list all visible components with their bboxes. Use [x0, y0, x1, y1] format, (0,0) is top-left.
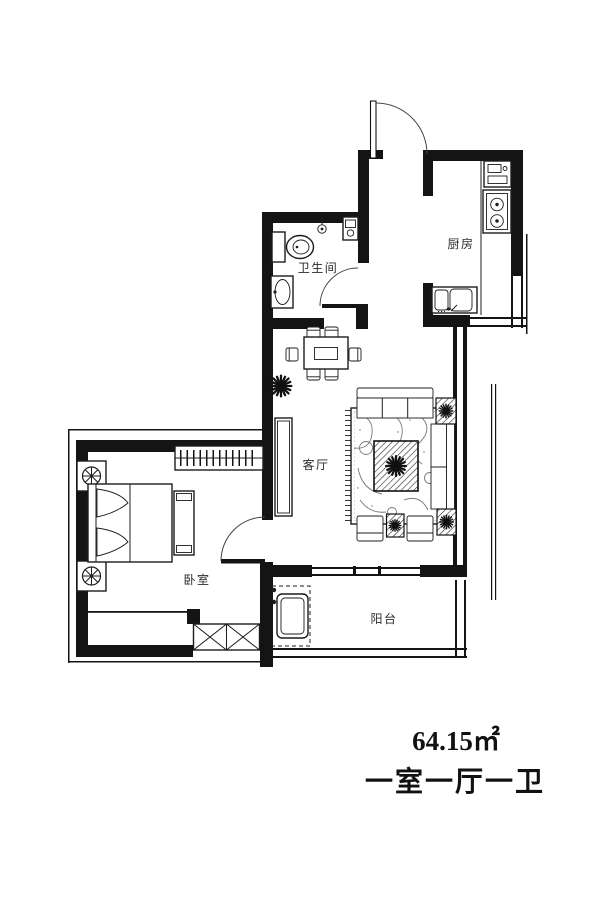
room-label-bedroom: 卧室: [183, 572, 210, 587]
area-label: 64.15㎡: [412, 725, 500, 756]
bay-cabinet-icon: [194, 624, 260, 650]
kitchen-appliance-icon: [484, 161, 511, 187]
dining-table-icon: [286, 327, 361, 380]
kitchen-sink-icon: [432, 287, 477, 313]
water-heater-icon: [343, 217, 358, 240]
bed-bench-icon: [174, 491, 194, 555]
bed-icon: [88, 484, 172, 562]
room-label-kitchen: 厨房: [447, 236, 474, 251]
bathroom-sink-icon: [271, 276, 293, 308]
washing-machine-icon: [272, 586, 310, 646]
toilet-icon: [272, 232, 314, 262]
tv-cabinet-icon: [275, 418, 292, 516]
bedroom-door-icon: [221, 517, 265, 564]
floor-plan-svg: 卫生间 厨房 客厅 卧室 阳台 64.15㎡ 一室一厅一卫: [0, 0, 600, 900]
wardrobe-icon: [175, 446, 263, 470]
room-label-balcony: 阳台: [370, 611, 397, 626]
floor-plan-page: 卫生间 厨房 客厅 卧室 阳台 64.15㎡ 一室一厅一卫: [0, 0, 600, 900]
entry-door-icon: [371, 101, 428, 158]
room-label-living: 客厅: [302, 457, 329, 472]
coffee-table-icon: [374, 441, 418, 491]
layout-label: 一室一厅一卫: [365, 765, 545, 798]
plant-icon: [271, 376, 292, 397]
stove-icon: [483, 190, 511, 233]
room-label-bathroom: 卫生间: [298, 261, 339, 275]
